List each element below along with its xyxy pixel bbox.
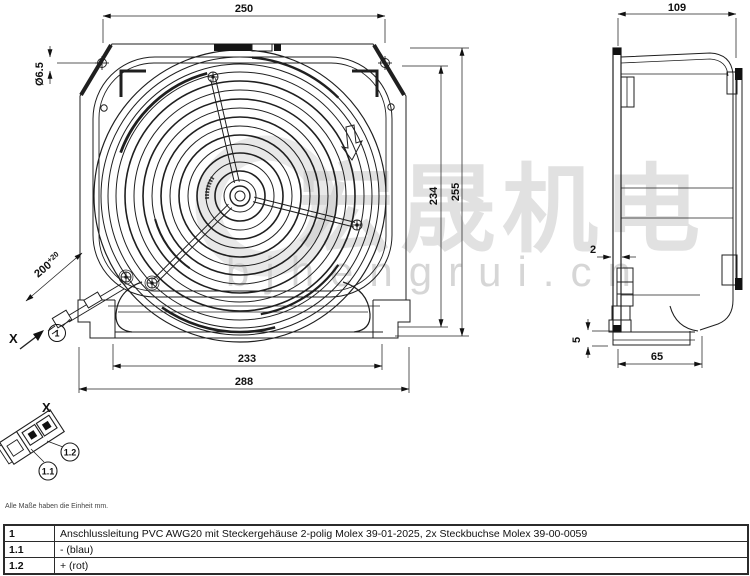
units-note: Alle Maße haben die Einheit mm. xyxy=(5,503,108,510)
part-id-cell: 1 xyxy=(5,526,55,541)
dim-front-width: 250 xyxy=(235,3,253,15)
dim-inner-height: 234 xyxy=(428,186,440,205)
part-desc-cell: - (blau) xyxy=(55,544,747,556)
dim-flange-thickness: 2 xyxy=(590,244,596,256)
lead-wire xyxy=(48,284,124,334)
corner-notch xyxy=(121,71,146,97)
technical-drawing: 宏晟机电 bjhengrui.cn xyxy=(0,0,750,576)
balloon-1-1-label: 1.1 xyxy=(42,467,55,477)
dim-depth: 109 xyxy=(668,2,686,14)
balloon-1-label: 1 xyxy=(54,329,59,339)
small-hole-icon xyxy=(101,105,107,111)
dim-cable-length: 200+20 xyxy=(31,250,64,281)
table-row: 1.2 + (rot) xyxy=(5,557,747,573)
chamfer-accent xyxy=(81,45,111,95)
parts-table: 1 Anschlussleitung PVC AWG20 mit Stecker… xyxy=(3,524,749,575)
screw-icon xyxy=(119,270,159,290)
dim-outer-width: 288 xyxy=(235,376,253,388)
watermark-url-text: bjhengrui.cn xyxy=(226,248,647,295)
label-strip xyxy=(214,44,281,51)
connector-detail xyxy=(0,410,64,467)
dim-base-depth: 65 xyxy=(651,351,663,363)
dim-hole-dia: Ø6.5 xyxy=(34,62,46,86)
view-direction-arrow-icon xyxy=(33,330,44,341)
dim-outer-height: 255 xyxy=(450,183,462,201)
dim-inner-width: 233 xyxy=(238,353,256,365)
table-row: 1.1 - (blau) xyxy=(5,541,747,557)
view-arrow-label: X xyxy=(9,331,18,346)
detail-view-label: X xyxy=(42,400,51,415)
balloon-1-2-label: 1.2 xyxy=(64,448,77,458)
part-desc-cell: Anschlussleitung PVC AWG20 mit Steckerge… xyxy=(55,528,747,540)
part-id-cell: 1.2 xyxy=(5,558,55,573)
part-id-cell: 1.1 xyxy=(5,542,55,557)
dim-foot-height: 5 xyxy=(571,337,583,343)
front-view xyxy=(48,44,410,342)
detail-view-x xyxy=(0,410,79,480)
part-desc-cell: + (rot) xyxy=(55,560,747,572)
drawing-sheet: 宏晟机电 bjhengrui.cn xyxy=(0,0,750,576)
table-row: 1 Anschlussleitung PVC AWG20 mit Stecker… xyxy=(5,526,747,541)
